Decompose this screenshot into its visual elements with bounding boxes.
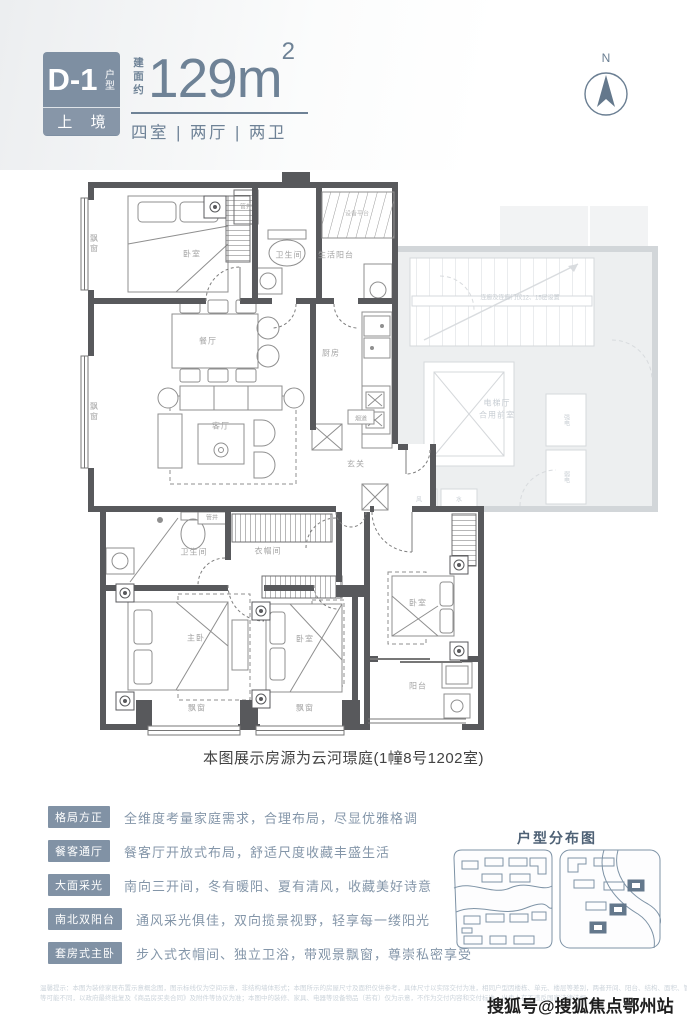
watermark: 搜狐号@搜狐焦点鄂州站	[487, 992, 674, 1017]
distribution-maps	[452, 848, 662, 956]
feature-tag: 大面采光	[48, 874, 110, 896]
feature-row: 大面采光 南向三开间，冬有暖阳、夏有清风，收藏美好诗意	[48, 874, 472, 896]
room-label-strong-electric: 强电	[562, 414, 571, 426]
room-label-pipe-shaft-2: 管井	[206, 513, 218, 522]
room-label-front-room: 合用前室	[479, 410, 515, 421]
room-label-bay-left-1: 飘窗	[89, 234, 100, 254]
room-label-foyer: 玄关	[347, 459, 365, 470]
plan-caption: 本图展示房源为云河璟庭(1幢8号1202室)	[0, 747, 687, 768]
room-label-bay-left-2: 飘窗	[89, 402, 100, 422]
room-label-corridor-note: 连廊及连廊门仅12、15层设置	[480, 293, 559, 302]
feature-row: 格局方正 全维度考量家庭需求，合理布局，尽显优雅格调	[48, 806, 472, 828]
room-label-closet: 衣帽间	[255, 546, 282, 557]
room-label-equipment-platform: 设备平台	[345, 209, 369, 218]
distribution-title: 户型分布图	[452, 828, 662, 848]
floor-plan-svg	[80, 168, 672, 744]
stairwell	[410, 258, 594, 346]
room-label-bath-2: 卫生间	[181, 547, 208, 558]
room-label-bedroom-3: 卧室	[409, 598, 427, 609]
room-label-living: 客厅	[212, 421, 230, 432]
feature-desc: 餐客厅开放式布局，舒适尺度收藏丰盛生活	[124, 842, 390, 861]
feature-desc: 南向三开间，冬有暖阳、夏有清风，收藏美好诗意	[124, 876, 432, 895]
feature-list: 格局方正 全维度考量家庭需求，合理布局，尽显优雅格调 餐客通厅 餐客厅开放式布局…	[48, 806, 472, 964]
room-label-master-bedroom: 主卧	[187, 633, 205, 644]
room-label-wind-shaft: 风	[416, 495, 422, 504]
feature-row: 套房式主卧 步入式衣帽间、独立卫浴，带观景飘窗，尊崇私密享受	[48, 942, 472, 964]
room-label-kitchen: 厨房	[322, 348, 340, 359]
common-area	[398, 206, 658, 512]
room-label-service-balcony: 生活阳台	[318, 250, 354, 261]
feature-desc: 通风采光俱佳，双向揽景视野，轻享每一缕阳光	[136, 910, 430, 929]
room-label-pipe-shaft-1: 管井	[240, 202, 252, 211]
feature-tag: 餐客通厅	[48, 840, 110, 862]
room-label-bedroom-tl: 卧室	[183, 249, 201, 260]
room-label-dining: 餐厅	[199, 336, 217, 347]
room-label-weak-electric: 弱电	[562, 471, 571, 483]
floorplan-page: D-1 户型 上 境 建面约 129m2 四室 | 两厅 | 两卫 N	[0, 0, 687, 1021]
feature-tag: 套房式主卧	[48, 942, 122, 964]
feature-desc: 全维度考量家庭需求，合理布局，尽显优雅格调	[124, 808, 418, 827]
feature-row: 餐客通厅 餐客厅开放式布局，舒适尺度收藏丰盛生活	[48, 840, 472, 862]
room-label-bay-bottom-1: 飘窗	[188, 703, 206, 714]
feature-desc: 步入式衣帽间、独立卫浴，带观景飘窗，尊崇私密享受	[136, 944, 472, 963]
room-label-elevator-hall: 电梯厅	[484, 398, 511, 409]
room-label-flue: 烟道	[355, 414, 367, 423]
room-label-balcony: 阳台	[409, 681, 427, 692]
feature-tag: 南北双阳台	[48, 908, 122, 930]
room-label-bay-bottom-2: 飘窗	[296, 703, 314, 714]
room-label-bedroom-2: 卧室	[296, 634, 314, 645]
room-label-bath-1: 卫生间	[276, 250, 303, 261]
feature-row: 南北双阳台 通风采光俱佳，双向揽景视野，轻享每一缕阳光	[48, 908, 472, 930]
feature-tag: 格局方正	[48, 806, 110, 828]
room-label-water-shaft: 水	[456, 495, 462, 504]
